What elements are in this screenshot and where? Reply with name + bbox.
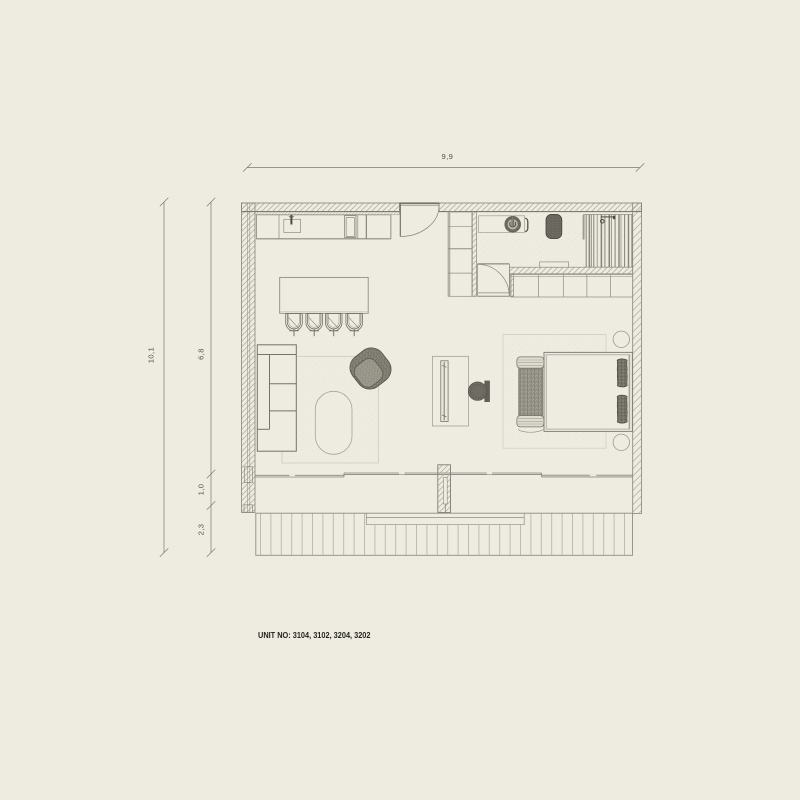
svg-text:2,3: 2,3 xyxy=(197,524,206,536)
svg-text:6,8: 6,8 xyxy=(197,348,206,360)
svg-text:10,1: 10,1 xyxy=(147,347,156,363)
svg-text:1,0: 1,0 xyxy=(197,484,206,496)
svg-text:UNIT NO: 3104, 3102, 3204, 320: UNIT NO: 3104, 3102, 3204, 3202 xyxy=(258,630,371,640)
svg-text:9,9: 9,9 xyxy=(442,152,454,161)
